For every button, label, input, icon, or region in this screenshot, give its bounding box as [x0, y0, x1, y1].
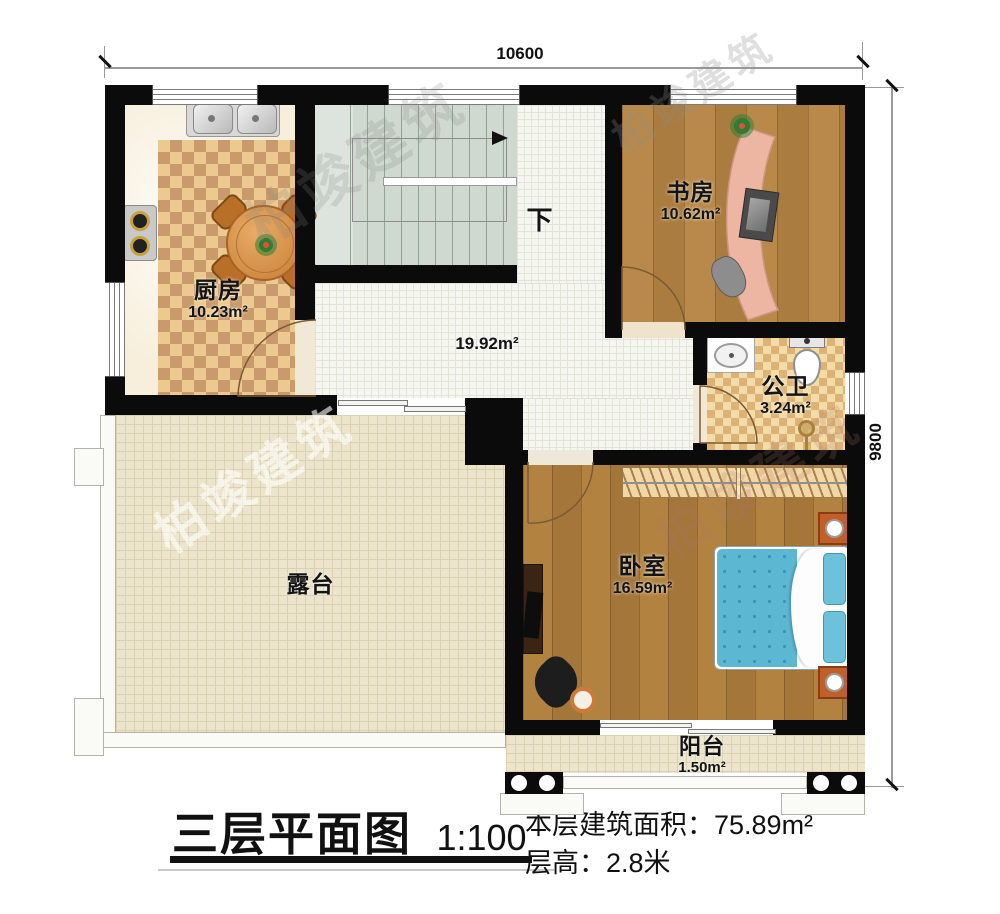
bathroom-label: 公卫 3.24m² — [733, 374, 838, 418]
wall-segment — [105, 85, 125, 282]
window — [105, 282, 125, 377]
window — [388, 85, 520, 105]
sliding-door-panel — [404, 406, 466, 412]
extension-line — [862, 87, 904, 88]
sliding-door-terrace — [338, 398, 466, 414]
balcony-pier — [505, 772, 563, 794]
bathroom-sink — [707, 337, 755, 373]
study-area: 10.62m² — [628, 206, 753, 224]
bed-pillow — [823, 553, 846, 605]
door-opening — [622, 322, 685, 338]
table-plant-icon — [255, 234, 277, 256]
floor-plan: 10600 9800 — [0, 0, 1000, 914]
hallway-area: 19.92m² — [437, 334, 537, 353]
sliding-door-panel — [338, 400, 408, 406]
bedroom-name: 卧室 — [590, 554, 695, 580]
kitchen-label: 厨房 10.23m² — [158, 278, 278, 322]
door-opening — [295, 320, 315, 396]
bathroom-area: 3.24m² — [733, 400, 838, 418]
hallway-area-label: 19.92m² — [437, 334, 537, 353]
wall-segment — [505, 720, 600, 735]
balcony-label: 阳台 1.50m² — [652, 735, 752, 776]
bed-pillow — [823, 611, 846, 663]
balcony-step — [500, 793, 584, 815]
shower-head-icon — [798, 420, 815, 437]
wall-segment — [505, 450, 523, 735]
stair-handrail — [383, 177, 517, 186]
terrace-side-box — [74, 448, 104, 486]
wall-segment — [685, 322, 865, 338]
window — [670, 85, 797, 105]
info-height-value: 2.8米 — [606, 848, 671, 878]
title-underline — [170, 856, 532, 863]
study-plant-icon — [730, 114, 754, 138]
plan-title: 三层平面图 — [172, 808, 412, 860]
side-table — [570, 687, 596, 713]
title-block: 三层平面图 1:100 — [172, 798, 532, 856]
wardrobe — [622, 467, 853, 498]
dimension-top-label: 10600 — [460, 44, 580, 64]
wall-segment — [105, 395, 337, 415]
wall-segment — [593, 450, 865, 465]
pier-post — [813, 775, 829, 791]
wall-segment — [310, 265, 517, 283]
balcony-area: 1.50m² — [652, 760, 752, 777]
balcony-step — [781, 793, 865, 815]
balcony-pier — [807, 772, 865, 794]
stairs-down-text: 下 — [520, 206, 560, 235]
plan-scale: 1:100 — [436, 817, 526, 858]
terrace-step — [74, 698, 104, 756]
balcony-name: 阳台 — [652, 735, 752, 760]
dimension-line-right — [891, 85, 893, 788]
window — [845, 372, 865, 415]
terrace-label: 露台 — [268, 572, 353, 598]
dining-table — [226, 205, 302, 281]
sliding-door-panel — [600, 723, 692, 728]
wall-segment — [520, 85, 670, 105]
pier-post — [511, 775, 527, 791]
stove — [123, 205, 157, 261]
study-label: 书房 10.62m² — [628, 180, 753, 224]
wall-segment — [605, 85, 622, 338]
sink-drain — [729, 353, 734, 358]
bed-mattress — [717, 549, 797, 667]
nightstand-lamp-icon — [825, 673, 844, 692]
extension-line — [862, 786, 904, 787]
stairs-down-label: 下 — [520, 206, 560, 235]
sink-drain — [208, 115, 215, 122]
wall-segment — [465, 398, 523, 465]
pier-post — [841, 775, 857, 791]
toilet-button — [804, 338, 810, 344]
wall-segment — [605, 322, 622, 338]
kitchen-area: 10.23m² — [158, 304, 278, 322]
info-height-line: 层高：2.8米 — [525, 841, 671, 880]
bathroom-name: 公卫 — [733, 374, 838, 400]
door-opening — [693, 385, 707, 443]
terrace-name: 露台 — [268, 572, 353, 598]
burner-icon — [130, 211, 150, 231]
balcony-parapet — [563, 776, 807, 789]
dimension-line-top — [105, 67, 863, 69]
nightstand-lamp-icon — [825, 519, 844, 538]
hallway-floor — [517, 105, 605, 283]
burner-icon — [130, 236, 150, 256]
pier-post — [539, 775, 555, 791]
wall-segment — [693, 338, 707, 385]
bedroom-area: 16.59m² — [590, 580, 695, 598]
dimension-right-label: 9800 — [866, 412, 886, 472]
study-name: 书房 — [628, 180, 753, 206]
wall-segment — [295, 85, 315, 320]
title-underline-thin — [158, 869, 554, 871]
wall-segment — [773, 720, 865, 735]
terrace-parapet-bottom — [100, 732, 506, 748]
wardrobe-divider — [736, 468, 741, 499]
bed-blanket — [791, 549, 825, 667]
kitchen-name: 厨房 — [158, 278, 278, 304]
bedroom-label: 卧室 16.59m² — [590, 554, 695, 598]
info-height-label: 层高： — [525, 848, 606, 878]
bed — [714, 546, 850, 670]
wall-segment — [847, 465, 865, 735]
wall-segment — [258, 85, 388, 105]
down-arrow-icon — [492, 131, 508, 145]
window — [152, 85, 258, 105]
door-opening — [528, 450, 593, 465]
sink-drain — [252, 115, 259, 122]
